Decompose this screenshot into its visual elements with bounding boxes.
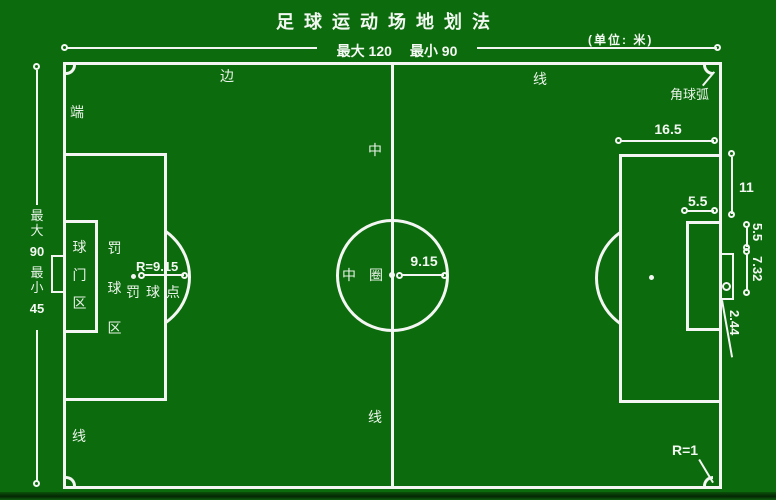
goal-width-value: 7.32 [750,256,765,281]
penalty-radius-marker-outer [181,272,188,279]
dim-7-32-line [746,253,748,291]
penalty-arc-left [167,218,193,336]
top-dimension-end-marker-right [714,44,721,51]
dim-7-32-marker-bottom [743,289,750,296]
top-dimension-label: 最大 120 最小 90 [317,41,477,61]
dim-11-marker-top [728,150,735,157]
penalty-spot-distance-value: 11 [739,179,754,195]
width-min-label: 最小 [30,266,45,296]
penalty-spot-label: 罚球点 [126,284,186,300]
side-line-label-left: 边 [220,68,234,84]
goal-area-label: 球门区 [71,233,88,317]
left-dimension-end-marker-top [33,63,40,70]
dim-5-5-top-marker-left [681,207,688,214]
unit-note: (单位: 米) [588,34,653,48]
dim-7-32-marker-top [743,248,750,255]
length-min-label: 最小 90 [410,41,457,61]
top-dimension-line-right [477,47,717,49]
dim-16-5-marker-left [615,137,622,144]
bottom-border-strip [0,492,776,500]
corner-radius-value: R=1 [672,442,698,458]
mid-line-label-top: 中 [368,142,382,158]
goal-area-depth-value: 5.5 [688,193,707,209]
goal-post-offset-value: 5.5 [750,223,765,241]
goal-right [720,253,734,300]
goal-height-value: 2.44 [727,310,742,335]
dim-16-5-line [621,140,714,142]
page-title: 足球运动场地划法 [0,8,776,34]
mid-line-label-bottom: 线 [368,409,382,425]
penalty-spot-right [649,275,654,280]
left-dimension-line-bottom [36,330,38,482]
left-dimension-label: 最大 90 最小 45 [20,209,54,317]
left-dimension-line-top [36,70,38,205]
width-min-value: 45 [30,302,44,317]
center-circle-label-b: 圈 [369,267,383,283]
center-radius-value: 9.15 [402,253,446,269]
penalty-area-label: 罚球区 [106,228,123,348]
center-circle-label-a: 中 [342,267,356,283]
dim-11-marker-bottom [728,211,735,218]
left-dimension-end-marker-bottom [33,480,40,487]
end-line-label-top: 端 [70,104,84,120]
side-line-label-right: 线 [533,71,547,87]
dim-16-5-marker-right [711,137,718,144]
dim-11-line [731,157,733,214]
field-diagram: 足球运动场地划法 (单位: 米) 最大 120 最小 90 最大 90 最小 4… [0,0,776,500]
length-max-label: 最大 120 [337,41,392,61]
center-radius-marker-outer [441,272,448,279]
width-max-value: 90 [30,245,44,260]
top-dimension-line-left [67,47,317,49]
corner-arc-label: 角球弧 [670,88,709,103]
dim-5-5-top-marker-right [711,207,718,214]
goal-left [51,255,65,293]
center-radius-line [402,274,444,276]
end-line-label-bottom: 线 [72,428,86,444]
penalty-radius-line [144,274,184,276]
ball-marker [722,282,731,291]
goal-area-right [686,221,722,331]
penalty-depth-value: 16.5 [640,121,696,137]
center-spot [389,272,395,278]
width-max-label: 最大 [30,209,45,239]
dim-5-5-top-line [686,210,714,212]
top-dimension-end-marker-left [61,44,68,51]
dim-5-5-right-marker-top [743,221,750,228]
penalty-arc-right [593,220,619,337]
